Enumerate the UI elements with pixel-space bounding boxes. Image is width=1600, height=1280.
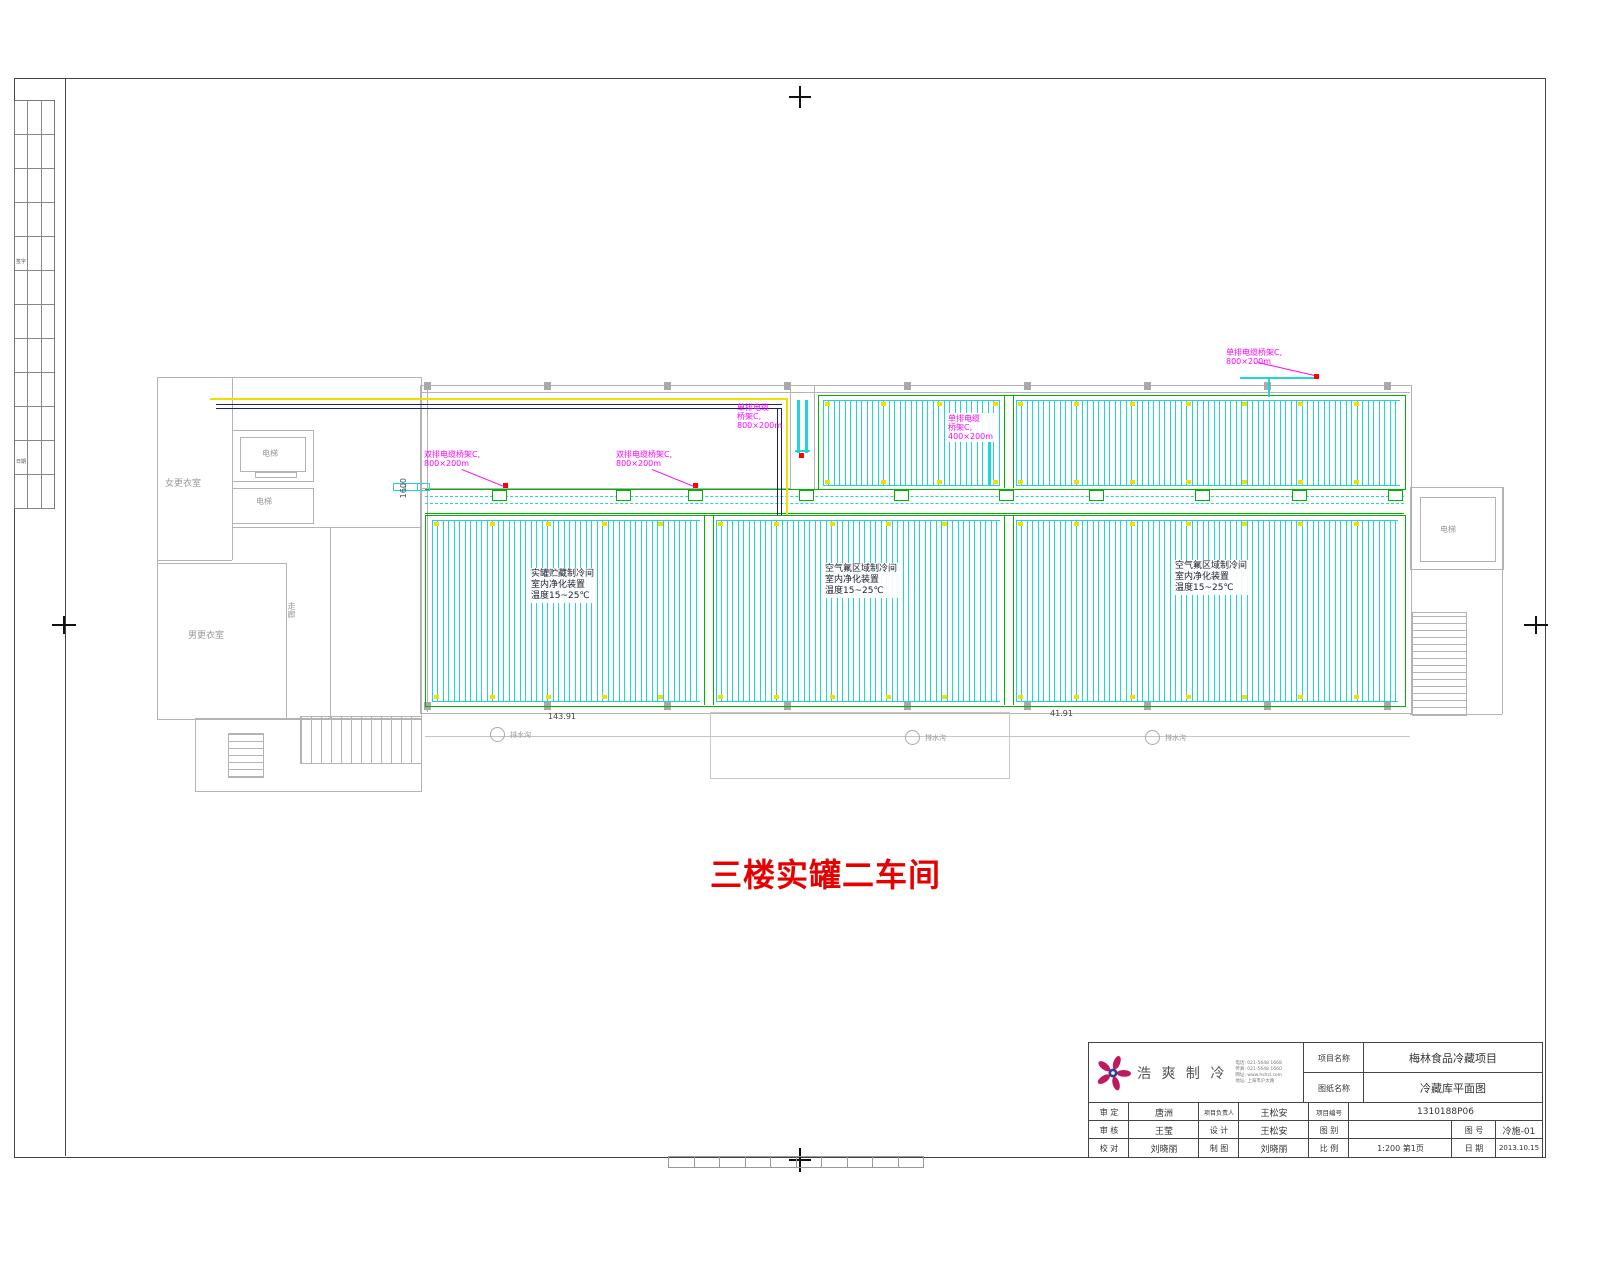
tray-label-2: 双排电缆桥架C, 800×200m: [616, 450, 672, 468]
dim-1600: 1600: [399, 478, 408, 498]
riser-upper-right-vertical: [1268, 377, 1270, 397]
tray-label-5-line1: 单排电缆桥架C,: [1226, 348, 1282, 357]
signoff-strip-row: [15, 407, 54, 441]
coil-hangers: [718, 522, 998, 526]
scale-value-cell: 1:200 第1页: [1348, 1138, 1452, 1157]
right-boundary: [1502, 487, 1503, 714]
signoff-strip-row: [15, 169, 54, 203]
drafter-name-cell: 刘晓丽: [1238, 1138, 1309, 1157]
riser-upper-right-horizontal: [1240, 377, 1318, 379]
fold-ruler-box: [695, 1156, 721, 1168]
inner-frame-left-line: [65, 78, 66, 1156]
drawing-name-label-cell: 图纸名称: [1303, 1072, 1364, 1103]
checked-name-cell: 王莹: [1128, 1120, 1199, 1139]
refrigerant-riser-1: [797, 400, 800, 453]
lower-hall-divider-2: [1004, 515, 1014, 705]
signoff-strip-row: [15, 203, 54, 237]
hall-top-wall-inner: [420, 392, 1410, 393]
annex-wall-2: [157, 560, 232, 561]
signoff-strip-label-2: 日期: [16, 458, 26, 465]
signoff-strip-row: [15, 339, 54, 373]
room-label-mens: 男更衣室: [188, 628, 224, 641]
checked-label-cell: 审 核: [1088, 1120, 1129, 1139]
bay3-label: 空气氟区域制冷间 室内净化装置 温度15~25℃: [1172, 560, 1250, 595]
coil-hangers: [434, 522, 698, 526]
drafter-label-cell: 制 图: [1198, 1138, 1239, 1157]
signoff-strip-row: [15, 237, 54, 271]
fold-ruler-box: [771, 1156, 797, 1168]
room-label-elevator-b: 电梯: [256, 496, 272, 507]
date-label-cell: 日 期: [1451, 1138, 1496, 1157]
tray-drop-marker-4: [1314, 374, 1319, 379]
header-valve-box: [799, 490, 814, 501]
bay3-label-line1: 空气氟区域制冷间: [1175, 561, 1247, 572]
sheet-no-label-cell: 图 号: [1451, 1120, 1496, 1139]
proofread-name-cell: 刘晓丽: [1128, 1138, 1199, 1157]
tray-label-3-line2: 桥架C,: [737, 412, 782, 421]
signoff-strip-label-1: 签字: [16, 258, 26, 265]
room-label-elevator-a: 电梯: [262, 448, 278, 459]
drain-circle-icon: [490, 727, 505, 742]
project-name-value-cell: 梅林食品冷藏项目: [1363, 1042, 1542, 1073]
header-valve-box: [894, 490, 909, 501]
header-valve-box: [1292, 490, 1307, 501]
drain-circle-icon: [1145, 730, 1160, 745]
bay1-label-line1: 实罐贮藏制冷间: [531, 569, 594, 580]
elevator-a-door: [255, 472, 297, 478]
annex-wall-4: [330, 527, 331, 718]
tray-drop-marker-3: [799, 453, 804, 458]
sheet-no-value-cell: 冷施-01: [1495, 1120, 1542, 1139]
fold-ruler-box: [669, 1156, 695, 1168]
proofread-label-cell: 校 对: [1088, 1138, 1129, 1157]
signoff-strip-divider-2: [41, 100, 42, 509]
fold-ruler-box: [848, 1156, 874, 1168]
cable-tray-yellow-horizontal: [210, 398, 788, 400]
coil-hangers: [718, 695, 998, 699]
upper-room-right-wall-2: [814, 385, 815, 490]
bay2-label-line1: 空气氟区域制冷间: [825, 564, 897, 575]
approved-label-cell: 审 定: [1088, 1102, 1129, 1121]
project-lead-label-cell: 项目负责人: [1198, 1102, 1239, 1121]
tray-label-3-line1: 单排电缆: [737, 403, 782, 412]
coil-hangers: [1018, 695, 1396, 699]
room-label-corridor: 走廊: [286, 602, 297, 618]
header-valve-box: [688, 490, 703, 501]
stairs-main: [300, 716, 422, 764]
bay3-label-line2: 室内净化装置: [1175, 572, 1247, 583]
header-valve-box: [1195, 490, 1210, 501]
bay2-label-line3: 温度15~25℃: [825, 586, 897, 597]
tray-label-2-line2: 800×200m: [616, 459, 672, 468]
designer-name-cell: 王松安: [1238, 1120, 1309, 1139]
scale-label-cell: 比 例: [1308, 1138, 1349, 1157]
signoff-strip-row: [15, 101, 54, 135]
coil-field-upper-2: [1016, 400, 1400, 486]
bay1-label: 实罐贮藏制冷间 室内净化装置 温度15~25℃: [528, 568, 597, 603]
hall-top-columns: [424, 382, 1408, 390]
bay1-label-line3: 温度15~25℃: [531, 591, 594, 602]
coil-hangers: [825, 480, 998, 484]
signoff-strip-row: [15, 373, 54, 407]
mens-room-outline: [157, 563, 287, 720]
bay2-label-line2: 室内净化装置: [825, 575, 897, 586]
project-lead-name-cell: 王松安: [1238, 1102, 1309, 1121]
approved-name-cell: 唐洲: [1128, 1102, 1199, 1121]
signoff-strip-row: [15, 475, 54, 509]
fold-ruler-box: [873, 1156, 899, 1168]
drain-circle-icon: [905, 730, 920, 745]
room-label-elevator-right: 电梯: [1440, 524, 1456, 535]
signoff-strip: [14, 100, 55, 509]
signoff-strip-divider-1: [27, 100, 28, 509]
centering-mark-right: [1535, 616, 1537, 634]
tray-label-4: 单排电缆 桥架C, 400×200m: [946, 413, 995, 442]
tray-label-1-line2: 800×200m: [424, 459, 480, 468]
header-valve-box: [616, 490, 631, 501]
header-valve-box: [1089, 490, 1104, 501]
tray-label-1-line1: 双排电缆桥架C,: [424, 450, 480, 459]
tray-label-2-line1: 双排电缆桥架C,: [616, 450, 672, 459]
corridor-cyan-dash-2: [425, 503, 1404, 504]
fold-ruler-box: [899, 1156, 925, 1168]
room-label-womens: 女更衣室: [165, 476, 201, 489]
fold-ruler-box: [746, 1156, 772, 1168]
fold-ruler: [668, 1156, 924, 1168]
date-value-cell: 2013.10.15: [1495, 1138, 1542, 1157]
fold-ruler-box: [720, 1156, 746, 1168]
category-value-cell: [1348, 1120, 1452, 1139]
corridor-cyan-dash-1: [425, 496, 1404, 497]
header-valve-box: [999, 490, 1014, 501]
drain-label-1: 排水沟: [510, 730, 531, 740]
bay2-label: 空气氟区域制冷间 室内净化装置 温度15~25℃: [822, 563, 900, 598]
header-valve-box: [1388, 490, 1403, 501]
coil-hangers: [1018, 522, 1396, 526]
annex-wall-3: [232, 527, 420, 528]
upper-area-divider: [1004, 395, 1014, 488]
corridor-header-bottom: [425, 513, 1404, 514]
coil-hangers: [434, 695, 698, 699]
drain-label-2: 排水沟: [925, 733, 946, 743]
title-block-logo-cell: 浩 爽 制 冷 电话: 021-5648 1668 传真: 021-5648 1…: [1088, 1042, 1304, 1103]
project-no-label-cell: 项目编号: [1308, 1102, 1349, 1121]
designer-label-cell: 设 计: [1198, 1120, 1239, 1139]
tray-label-3: 单排电缆 桥架C, 800×200m: [737, 403, 782, 430]
tray-label-1: 双排电缆桥架C, 800×200m: [424, 450, 480, 468]
coil-hangers: [825, 402, 998, 406]
coil-hangers: [1018, 402, 1398, 406]
cable-tray-navy-horizontal: [216, 404, 782, 409]
upper-room-right-wall-1: [790, 385, 791, 490]
drain-label-3: 排水沟: [1165, 733, 1186, 743]
company-name: 浩 爽 制 冷: [1137, 1063, 1227, 1083]
tray-label-4-line2: 桥架C,: [948, 423, 993, 432]
drawing-name-value-cell: 冷藏库平面图: [1363, 1072, 1542, 1103]
coil-field-bay2: [716, 520, 1000, 702]
signoff-strip-row: [15, 271, 54, 305]
lower-hall-divider-1: [704, 515, 714, 705]
stairs-small: [228, 733, 264, 778]
right-bottom-line: [1410, 714, 1502, 715]
header-valve-box: [492, 490, 507, 501]
tray-label-5: 单排电缆桥架C, 800×200m: [1226, 348, 1282, 366]
refrigerant-riser-crossbar: [795, 450, 810, 452]
dim-143: 143.91: [548, 712, 576, 721]
drawing-sheet: 签字 日期 女更衣室 电梯 电梯 男更衣室 走廊 电梯: [0, 0, 1600, 1280]
right-annex-car: [1420, 497, 1496, 562]
corridor-header-top: [425, 489, 1404, 490]
signoff-strip-row: [15, 135, 54, 169]
coil-field-bay1: [432, 520, 700, 702]
category-label-cell: 图 别: [1308, 1120, 1349, 1139]
stairs-right: [1412, 612, 1467, 716]
centering-mark-top-bar: [789, 96, 811, 98]
company-logo-pinwheel-icon: [1095, 1055, 1131, 1091]
fold-ruler-box: [822, 1156, 848, 1168]
tray-label-4-line1: 单排电缆: [948, 414, 993, 423]
project-name-label-cell: 项目名称: [1303, 1042, 1364, 1073]
bay3-label-line3: 温度15~25℃: [1175, 583, 1247, 594]
tray-label-4-line3: 400×200m: [948, 432, 993, 441]
signoff-strip-row: [15, 305, 54, 339]
company-contacts: 电话: 021-5648 1668 传真: 021-5648 1660 网址: …: [1235, 1061, 1282, 1085]
refrigerant-riser-2: [805, 400, 808, 453]
bay1-label-line2: 室内净化装置: [531, 580, 594, 591]
centering-mark-left: [63, 616, 65, 634]
coil-field-bay3: [1016, 520, 1398, 702]
fold-ruler-box: [797, 1156, 823, 1168]
elevator-b-shaft: [232, 488, 314, 524]
project-no-value-cell: 1310188P06: [1348, 1102, 1542, 1121]
contact-line-4: 地址: 上海市沪太路: [1235, 1079, 1282, 1085]
dim-41: 41.91: [1050, 709, 1073, 718]
coil-hangers: [1018, 480, 1398, 484]
drawing-title: 三楼实罐二车间: [710, 850, 941, 896]
tray-label-3-line3: 800×200m: [737, 421, 782, 430]
loading-platform: [710, 712, 1010, 779]
cable-tray-yellow-vertical: [786, 398, 788, 515]
